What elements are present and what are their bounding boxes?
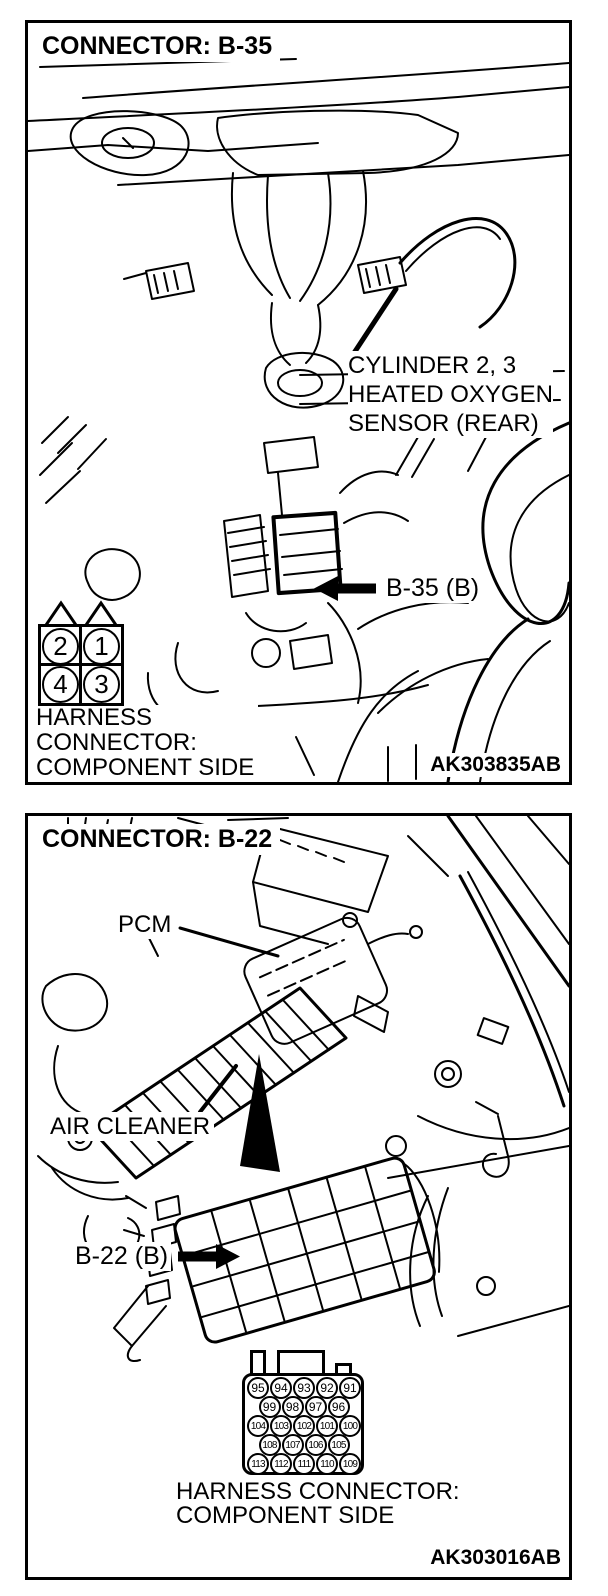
harness-connector-note: HARNESS CONNECTOR: COMPONENT SIDE bbox=[36, 705, 258, 780]
connector-b22-panel: CONNECTOR: B-22 PCM AIR CLEANER B-22 (B)… bbox=[25, 813, 572, 1580]
panel-title-b35: CONNECTOR: B-35 bbox=[40, 31, 280, 62]
connector-callout-text: B-22 (B) bbox=[72, 1242, 171, 1271]
pin-3: 3 bbox=[83, 666, 120, 703]
callout-arrow-left-icon bbox=[314, 576, 376, 601]
callout-arrow-right-icon bbox=[178, 1244, 240, 1269]
pin-2: 2 bbox=[42, 628, 79, 665]
panel-title-b22: CONNECTOR: B-22 bbox=[40, 824, 280, 855]
pin-4: 4 bbox=[42, 666, 79, 703]
pin-1: 1 bbox=[83, 628, 120, 665]
harness-note-line3: COMPONENT SIDE bbox=[36, 755, 254, 780]
pin-113: 113 bbox=[247, 1453, 269, 1475]
figure-id-b22: AK303016AB bbox=[422, 1546, 561, 1570]
oxygen-sensor-label-line3: SENSOR (REAR) bbox=[348, 409, 553, 438]
pin-111: 111 bbox=[293, 1453, 315, 1475]
harness-note-line2: COMPONENT SIDE bbox=[176, 1504, 460, 1528]
pin-112: 112 bbox=[270, 1453, 292, 1475]
oxygen-sensor-label-line1: CYLINDER 2, 3 bbox=[348, 351, 553, 380]
connector-location-callout-b35: B-35 (B) bbox=[314, 574, 482, 603]
pin-109: 109 bbox=[339, 1453, 361, 1475]
oxygen-sensor-label-line2: HEATED OXYGEN bbox=[348, 380, 553, 409]
harness-note-line1: HARNESS bbox=[36, 705, 254, 730]
figure-id-b35: AK303835AB bbox=[422, 753, 561, 777]
pin-diagram-b35: 2143 bbox=[38, 624, 124, 706]
oxygen-sensor-label: CYLINDER 2, 3 HEATED OXYGEN SENSOR (REAR… bbox=[348, 351, 553, 438]
harness-note-line1: HARNESS CONNECTOR: bbox=[176, 1480, 460, 1504]
connector-callout-text: B-35 (B) bbox=[383, 574, 482, 603]
harness-connector-note: HARNESS CONNECTOR: COMPONENT SIDE bbox=[176, 1480, 460, 1528]
pin-diagram-b22-pins: 9594939291999897961041031021011001081071… bbox=[247, 1377, 362, 1475]
pcm-label: PCM bbox=[114, 910, 175, 939]
air-cleaner-label: AIR CLEANER bbox=[46, 1112, 214, 1141]
harness-note-line2: CONNECTOR: bbox=[36, 730, 254, 755]
connector-location-callout-b22: B-22 (B) bbox=[72, 1242, 240, 1271]
pin-110: 110 bbox=[316, 1453, 338, 1475]
connector-b35-panel: CONNECTOR: B-35 CYLINDER 2, 3 HEATED OXY… bbox=[25, 20, 572, 785]
